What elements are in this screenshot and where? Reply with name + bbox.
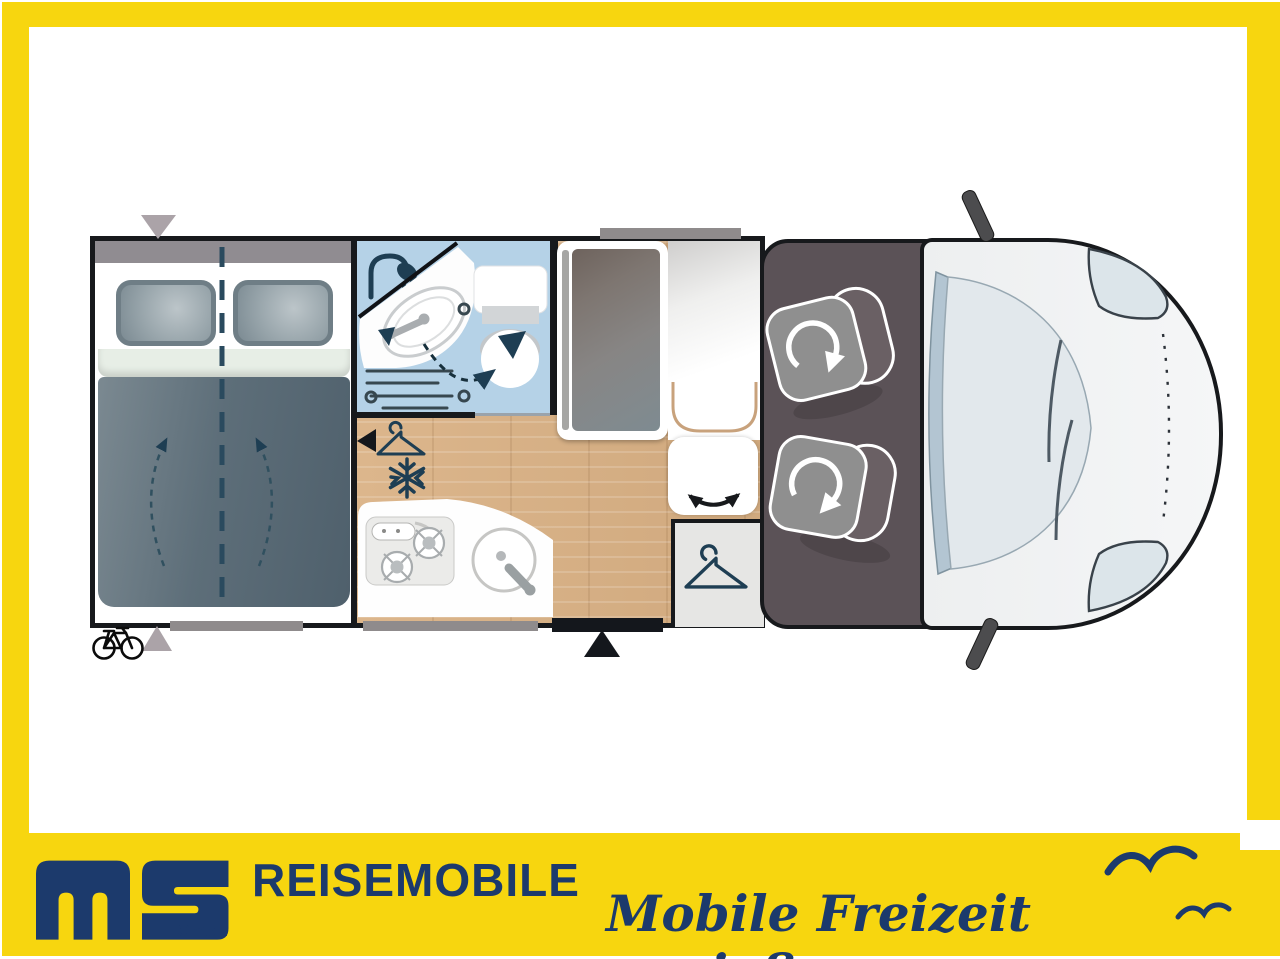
pillow-right <box>233 280 333 346</box>
frame-right <box>1247 2 1280 820</box>
wardrobe <box>671 519 764 627</box>
fridge-door <box>572 249 660 431</box>
entry-door <box>552 618 663 632</box>
brand-wordmark: REISEMOBILE <box>252 853 580 907</box>
skirt-strip-kitchen <box>363 621 538 631</box>
bed-headboard <box>95 241 352 263</box>
bench-seat <box>668 241 760 440</box>
bed-sheet-fold <box>98 349 350 377</box>
window-bar-top <box>600 228 741 239</box>
bicycle-icon <box>94 628 143 659</box>
frame-top <box>2 2 1280 27</box>
side-mirror-top <box>960 189 996 244</box>
entry-door-marker-icon <box>584 630 620 657</box>
page: GmbH REISEMOBILE Mobile Freizeit genieße… <box>0 0 1280 959</box>
bathroom-door-line <box>475 413 550 416</box>
swivel-seat <box>668 437 758 515</box>
rear-marker-bottom-icon <box>142 626 172 651</box>
bed-duvet <box>98 377 350 607</box>
pillow-left <box>116 280 216 346</box>
bathroom-floor <box>357 241 550 415</box>
skirt-strip-bed <box>170 621 303 631</box>
brand-tagline: Mobile Freizeit genießen. <box>606 884 1280 959</box>
frame-left <box>2 2 29 956</box>
wall-bathroom-bottom <box>351 412 475 418</box>
logo-gmbh: GmbH <box>140 921 228 941</box>
fridge-handle <box>562 250 569 430</box>
driver-cab <box>760 239 938 629</box>
vehicle-front-body <box>920 238 1223 630</box>
